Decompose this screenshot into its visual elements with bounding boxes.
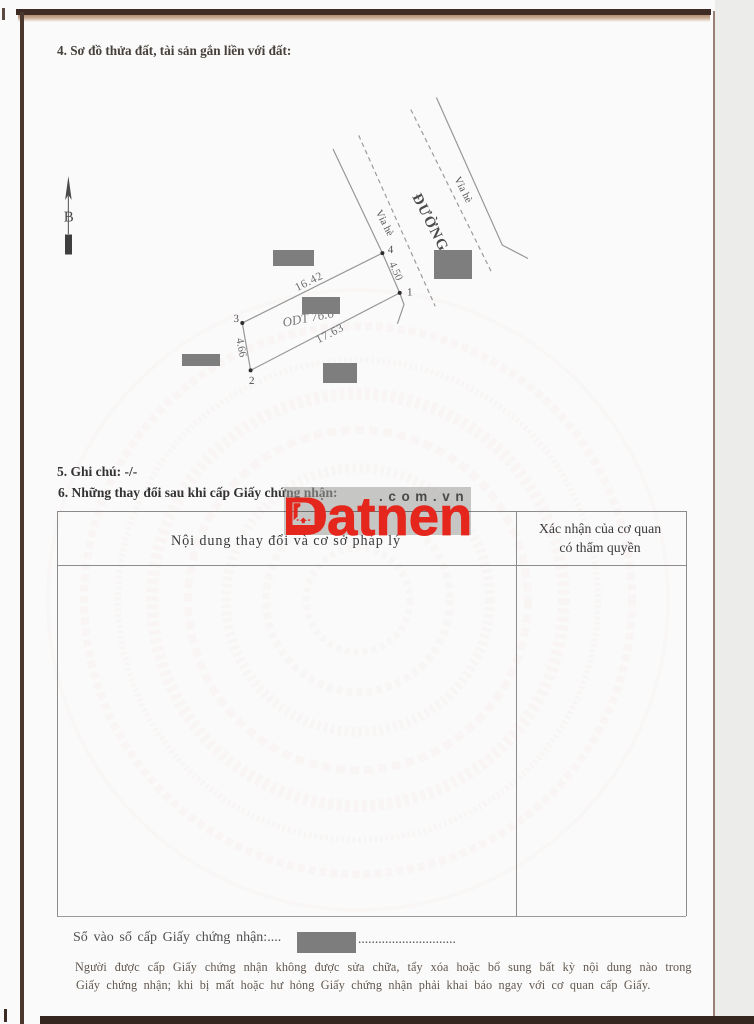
svg-text:Vỉa hè: Vỉa hè	[451, 175, 474, 205]
svg-text:2: 2	[249, 375, 255, 387]
svg-text:Vỉa hè: Vỉa hè	[373, 208, 396, 238]
svg-text:B: B	[64, 209, 74, 225]
svg-text:16.42: 16.42	[293, 270, 325, 294]
svg-text:4: 4	[388, 244, 394, 256]
svg-text:4.66: 4.66	[233, 337, 249, 359]
svg-text:17.63: 17.63	[314, 322, 346, 346]
svg-text:3: 3	[233, 313, 239, 325]
svg-text:1: 1	[407, 287, 413, 299]
svg-text:atnen: atnen	[327, 494, 472, 538]
svg-text:4.50: 4.50	[386, 260, 405, 283]
svg-text:ĐƯỜNG: ĐƯỜNG	[408, 191, 452, 255]
